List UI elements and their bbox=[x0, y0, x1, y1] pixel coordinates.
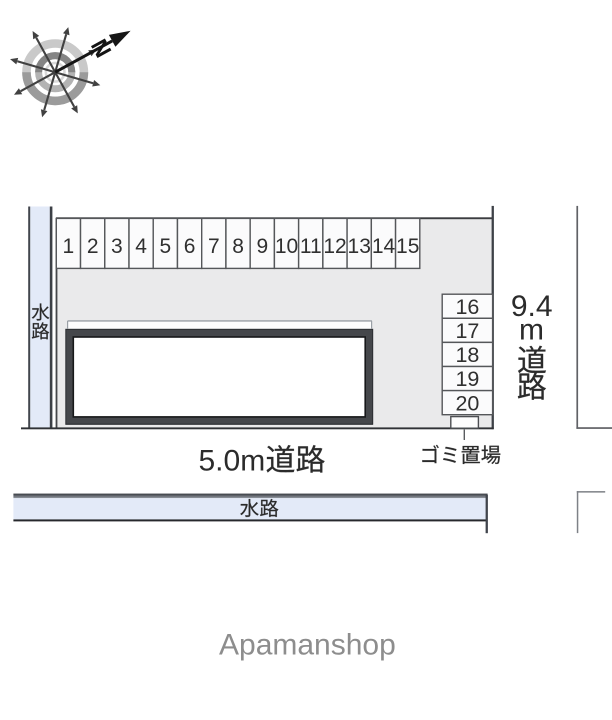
svg-text:9: 9 bbox=[256, 235, 268, 258]
svg-text:12: 12 bbox=[323, 235, 346, 258]
svg-text:7: 7 bbox=[208, 235, 220, 258]
svg-text:4: 4 bbox=[135, 235, 147, 258]
svg-text:13: 13 bbox=[348, 235, 371, 258]
svg-text:19: 19 bbox=[455, 367, 479, 391]
svg-text:5.0m: 5.0m bbox=[199, 444, 266, 477]
svg-text:m: m bbox=[519, 314, 544, 347]
svg-text:11: 11 bbox=[300, 235, 322, 258]
svg-text:10: 10 bbox=[275, 235, 298, 258]
svg-text:16: 16 bbox=[455, 295, 479, 319]
svg-text:2: 2 bbox=[87, 235, 99, 258]
svg-text:Apamanshop: Apamanshop bbox=[219, 629, 396, 662]
svg-text:17: 17 bbox=[455, 319, 479, 343]
svg-text:3: 3 bbox=[111, 235, 123, 258]
svg-text:8: 8 bbox=[232, 235, 244, 258]
svg-text:14: 14 bbox=[372, 235, 396, 258]
svg-text:5: 5 bbox=[160, 235, 172, 258]
svg-text:6: 6 bbox=[184, 235, 196, 258]
svg-text:18: 18 bbox=[455, 343, 479, 367]
svg-text:1: 1 bbox=[63, 235, 75, 258]
svg-text:15: 15 bbox=[396, 235, 419, 258]
svg-text:20: 20 bbox=[455, 391, 479, 415]
